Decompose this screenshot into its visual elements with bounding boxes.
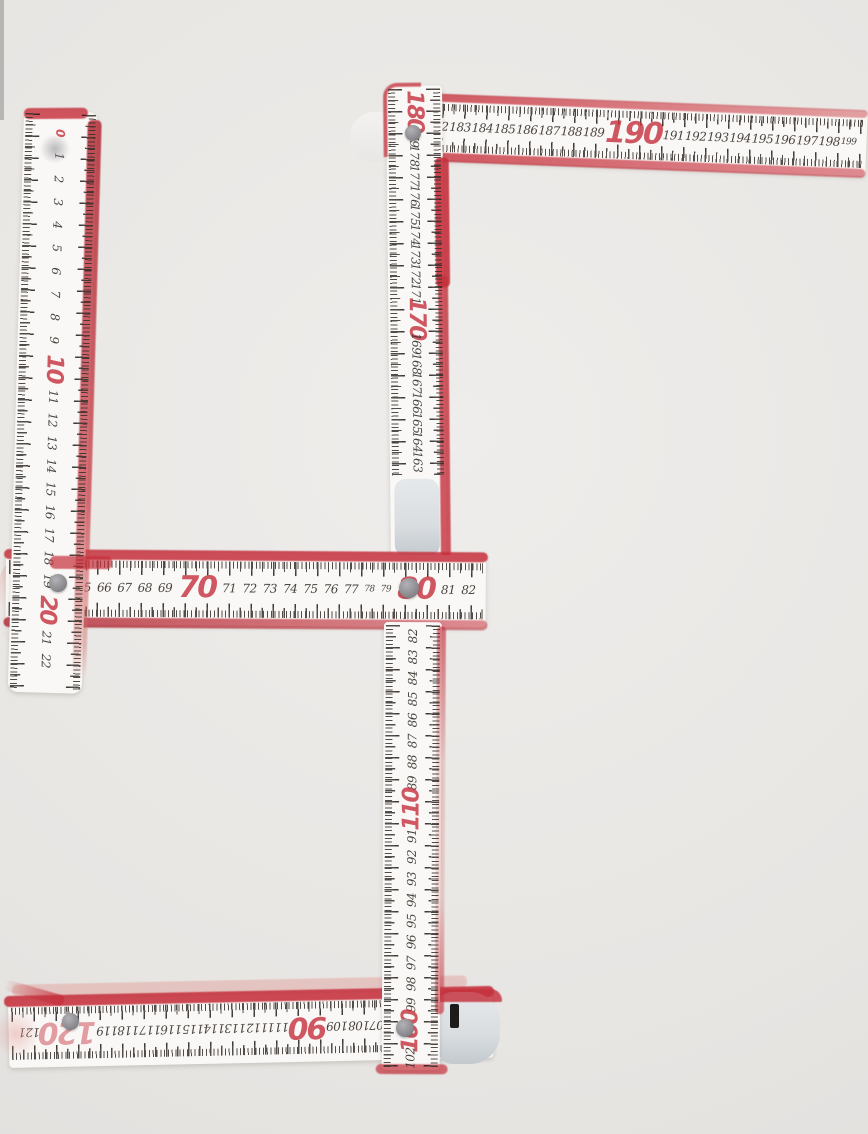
ruler-number: 178 <box>409 145 421 167</box>
ruler-number: 20 <box>35 595 59 624</box>
ruler-number: 85 <box>407 692 419 706</box>
ruler-number: 12 <box>46 413 58 428</box>
paint-smudge <box>38 136 72 162</box>
ruler-numbers: 1801791781771761751741731721711701691681… <box>393 99 439 467</box>
ruler-number: 111 <box>268 1021 290 1033</box>
ruler-number: 82 <box>407 629 419 643</box>
ruler-number: 5 <box>51 244 63 251</box>
ruler-number: 3 <box>52 198 64 205</box>
ruler-number: 197 <box>796 134 818 147</box>
ruler-number: 169 <box>411 333 423 355</box>
ruler-number: 75 <box>303 583 317 595</box>
hinge-cap <box>438 992 500 1064</box>
ruler-number: 15 <box>44 482 56 497</box>
ruler-number: 71 <box>222 582 236 594</box>
ruler-number: 173 <box>410 243 422 265</box>
ruler-number: 8 <box>49 313 61 320</box>
ruler-number: 196 <box>774 133 796 146</box>
ruler-number: 16 <box>44 505 56 520</box>
ruler-number: 189 <box>583 126 605 139</box>
paint-stroke-junction <box>50 556 112 569</box>
ruler-number: 68 <box>138 582 152 594</box>
ruler-number: 21 <box>40 631 52 646</box>
watercolor-folding-ruler-artwork: 1811821831841851861871881891901911921931… <box>0 0 868 1134</box>
ruler-number: 14 <box>45 459 57 474</box>
ruler-number: 7 <box>50 290 62 297</box>
ruler-number: 164 <box>412 431 424 453</box>
ruler-segment-top-horizontal: 1811821831841851861871881891901911921931… <box>394 94 868 176</box>
ruler-number: 78 <box>364 585 375 594</box>
hinge-slot <box>450 1004 459 1028</box>
ruler-number: 77 <box>344 583 358 595</box>
ruler-number: 82 <box>461 584 475 596</box>
ruler-number: 102 <box>405 1047 417 1068</box>
ruler-number: 81 <box>441 584 455 596</box>
ruler-number: 118 <box>118 1024 140 1036</box>
ruler-number: 70 <box>178 573 216 603</box>
ruler-number: 109 <box>327 1020 349 1032</box>
rivet <box>399 578 419 598</box>
ruler-number: 165 <box>411 412 423 434</box>
ruler-segment-left-vertical: 012345678910111213141516171819202122 <box>8 110 98 694</box>
ruler-number: 4 <box>52 221 64 228</box>
ruler-number: 199 <box>841 137 857 147</box>
ruler-number: 192 <box>685 130 707 143</box>
ruler-number: 185 <box>494 123 516 136</box>
ruler-number: 86 <box>406 713 418 727</box>
ruler-number: 90 <box>289 1011 327 1042</box>
ruler-number: 76 <box>324 583 338 595</box>
ruler-number: 98 <box>405 977 417 991</box>
ruler-number: 74 <box>283 583 297 595</box>
ruler-number: 188 <box>560 125 582 138</box>
ruler-number: 6 <box>50 267 62 274</box>
ruler-number: 66 <box>97 581 111 593</box>
ruler-numbers: 8283848586878889110919293949596979899100… <box>390 630 434 1064</box>
ruler-segment-upper-vertical: 1801791781771761751741731721711701691681… <box>386 85 447 560</box>
rivet <box>62 1013 79 1030</box>
ruler-number: 79 <box>381 585 392 594</box>
ruler-number: 116 <box>161 1023 183 1035</box>
ruler-number: 83 <box>407 650 419 664</box>
ruler-number: 95 <box>405 914 417 928</box>
ruler-number: 110 <box>400 789 423 831</box>
rivet <box>405 125 421 141</box>
ruler-number: 17 <box>43 528 55 543</box>
ruler-number: 91 <box>406 829 418 843</box>
ruler-number: 119 <box>97 1025 119 1037</box>
ruler-number: 97 <box>405 956 417 970</box>
ruler-number: 117 <box>139 1024 161 1036</box>
ruler-number: 112 <box>246 1021 268 1033</box>
rivet <box>396 1019 414 1037</box>
ruler-number: 177 <box>409 165 421 187</box>
ruler-number: 113 <box>225 1022 247 1034</box>
ruler-number: 172 <box>410 263 422 285</box>
ruler-number: 73 <box>263 583 277 595</box>
ruler-number: 94 <box>406 893 418 907</box>
paint-stroke-cap-edge <box>436 989 502 1002</box>
ruler-number: 87 <box>406 734 418 748</box>
ruler-number: 190 <box>605 118 663 150</box>
ruler-number: 93 <box>406 871 418 885</box>
ruler-number: 186 <box>516 123 538 136</box>
ruler-number: 193 <box>707 131 729 144</box>
ruler-number: 195 <box>751 132 773 145</box>
ruler-number: 167 <box>411 372 423 394</box>
ruler-number: 9 <box>48 336 60 343</box>
photo-edge <box>0 0 4 120</box>
ruler-number: 115 <box>182 1023 204 1035</box>
ruler-number: 176 <box>409 184 421 206</box>
ruler-number: 198 <box>818 135 840 148</box>
ruler-number: 67 <box>117 582 131 594</box>
ruler-number: 183 <box>449 121 471 134</box>
ruler-number: 22 <box>39 654 51 669</box>
ruler-number: 166 <box>411 392 423 414</box>
ruler-number: 114 <box>204 1022 226 1034</box>
ruler-number: 11 <box>47 390 59 405</box>
ruler-number: 69 <box>158 582 172 594</box>
ruler-number: 168 <box>411 353 423 375</box>
ruler-segment-lower-vertical: 8283848586878889110919293949596979899100… <box>382 622 442 1070</box>
ruler-number: 108 <box>348 1019 370 1031</box>
ruler-number: 72 <box>242 582 256 594</box>
ruler-number: 191 <box>662 129 684 142</box>
ruler-number: 88 <box>406 755 418 769</box>
rivet <box>49 574 67 592</box>
ruler-number: 92 <box>406 850 418 864</box>
ruler-number: 163 <box>412 451 424 473</box>
ruler-number: 96 <box>405 935 417 949</box>
ruler-number: 194 <box>729 132 751 145</box>
ruler-number: 10 <box>42 354 66 383</box>
ruler-number: 187 <box>538 124 560 137</box>
ruler-number: 13 <box>46 436 58 451</box>
ruler-number: 84 <box>407 671 419 685</box>
hinge-cap <box>394 478 440 556</box>
ruler-number: 2 <box>53 175 65 182</box>
ruler-number: 184 <box>471 122 493 135</box>
ruler-number: 175 <box>409 204 421 226</box>
